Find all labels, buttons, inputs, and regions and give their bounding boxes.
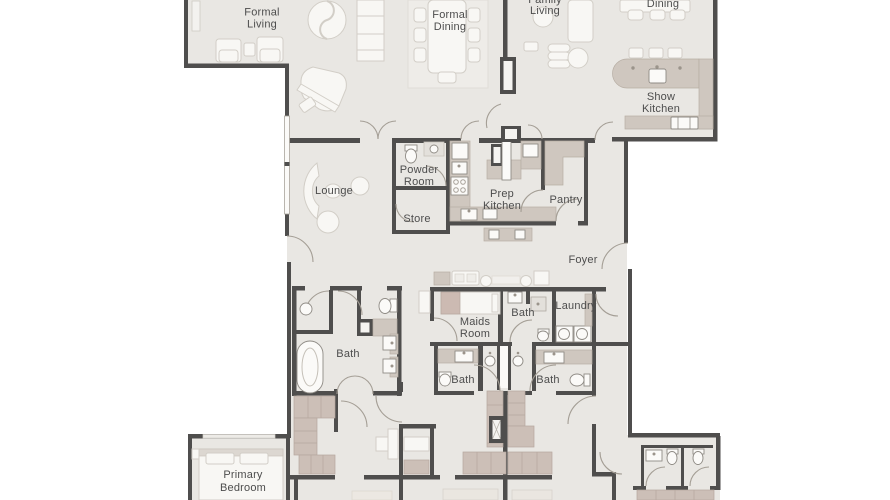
svg-text:Formal: Formal (432, 9, 467, 21)
svg-text:Bath: Bath (536, 374, 559, 386)
svg-text:Formal: Formal (244, 7, 279, 19)
svg-text:Prep: Prep (490, 188, 514, 200)
svg-text:Lounge: Lounge (315, 185, 353, 197)
svg-text:Pantry: Pantry (550, 194, 583, 206)
svg-text:Room: Room (460, 328, 490, 340)
svg-text:Bath: Bath (451, 374, 474, 386)
svg-text:Bath: Bath (511, 307, 534, 319)
svg-text:Kitchen: Kitchen (483, 200, 521, 212)
svg-text:Room: Room (404, 176, 434, 188)
svg-text:Maids: Maids (460, 316, 491, 328)
svg-text:Foyer: Foyer (568, 254, 597, 266)
svg-text:Living: Living (530, 5, 560, 17)
svg-text:Show: Show (647, 91, 675, 103)
svg-text:Laundry: Laundry (555, 300, 596, 312)
svg-text:Dining: Dining (434, 21, 466, 33)
svg-text:Kitchen: Kitchen (642, 103, 680, 115)
svg-text:Primary: Primary (223, 469, 263, 481)
svg-text:Living: Living (247, 19, 277, 31)
svg-text:Bath: Bath (336, 348, 359, 360)
svg-text:Bedroom: Bedroom (220, 482, 266, 494)
svg-text:Dining: Dining (647, 0, 679, 10)
svg-text:Store: Store (403, 213, 430, 225)
svg-text:Powder: Powder (400, 164, 439, 176)
